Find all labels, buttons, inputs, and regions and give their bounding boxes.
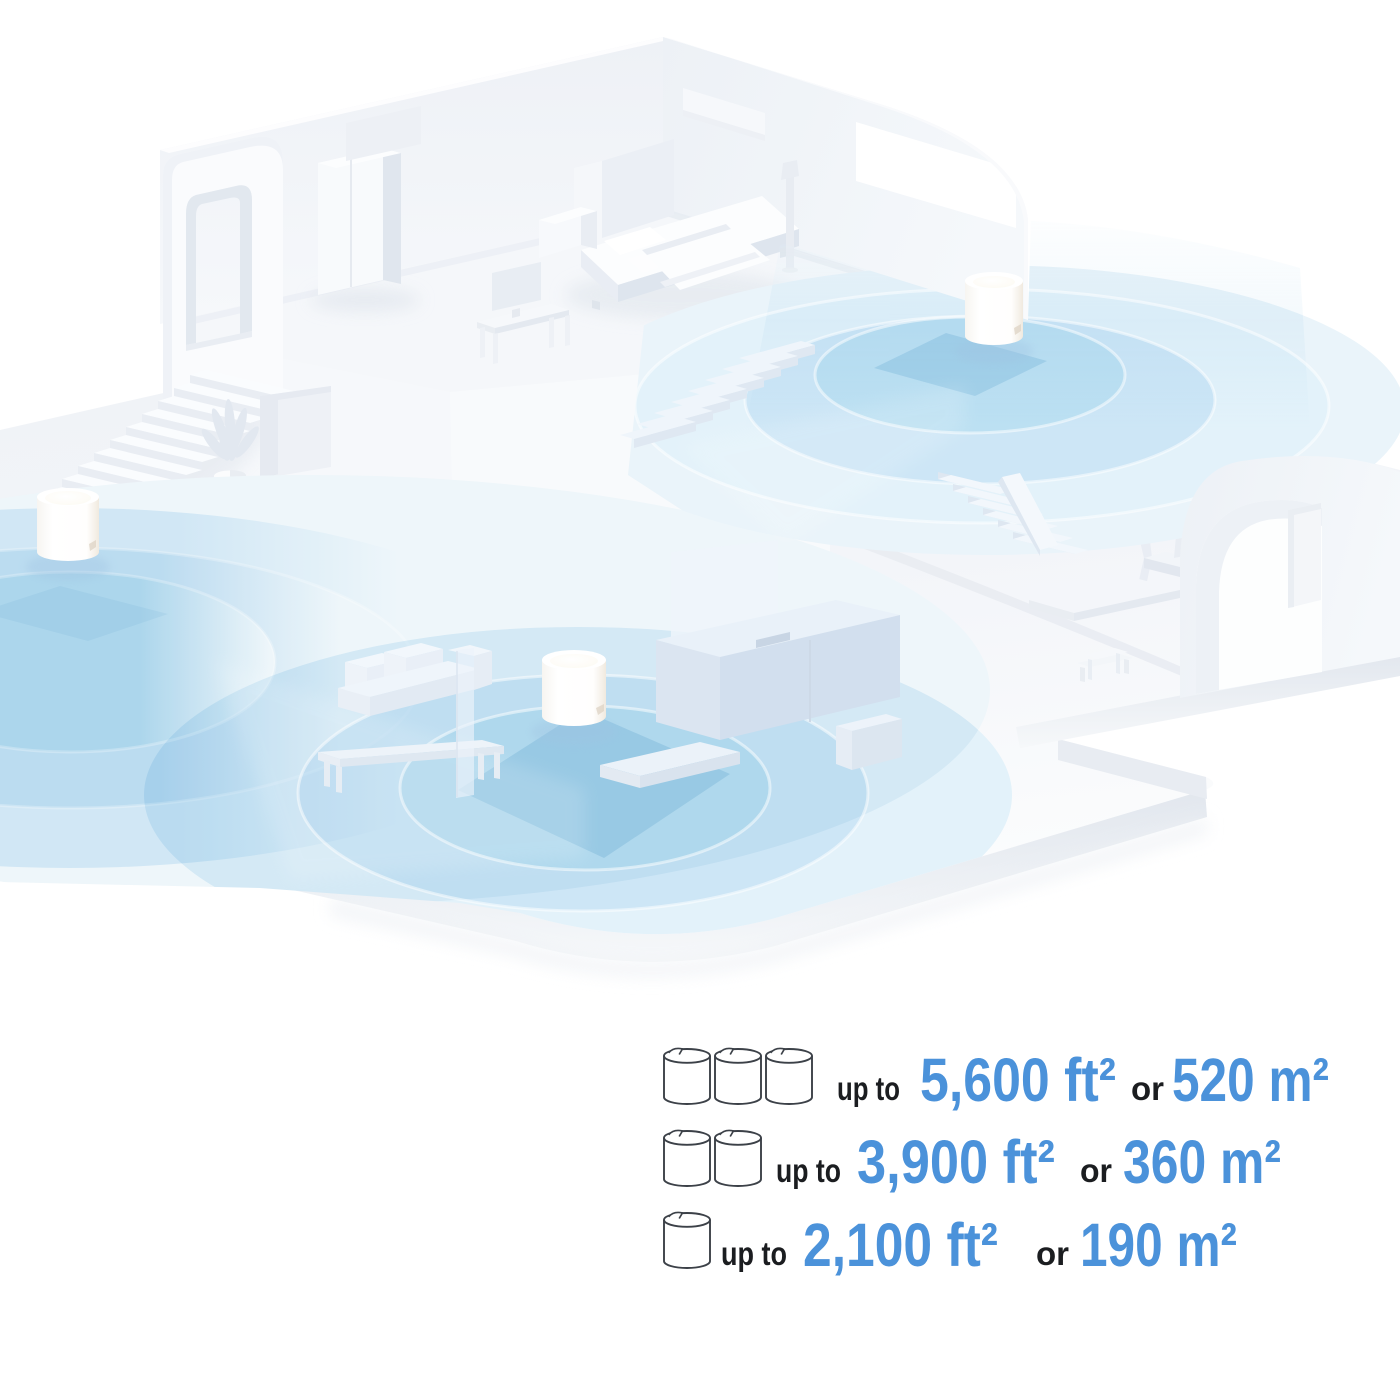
svg-text:190 m²: 190 m² (1080, 1211, 1237, 1279)
svg-text:5,600 ft²: 5,600 ft² (920, 1046, 1116, 1114)
svg-text:360 m²: 360 m² (1123, 1128, 1281, 1196)
svg-text:up to: up to (721, 1235, 787, 1272)
svg-text:or: or (1080, 1152, 1112, 1189)
svg-text:2,100 ft²: 2,100 ft² (803, 1211, 998, 1279)
svg-text:up to: up to (837, 1070, 900, 1107)
svg-text:3,900 ft²: 3,900 ft² (857, 1128, 1055, 1196)
svg-text:or: or (1131, 1070, 1164, 1107)
svg-text:520 m²: 520 m² (1172, 1046, 1329, 1114)
svg-text:up to: up to (776, 1152, 841, 1189)
svg-text:or: or (1036, 1235, 1069, 1272)
